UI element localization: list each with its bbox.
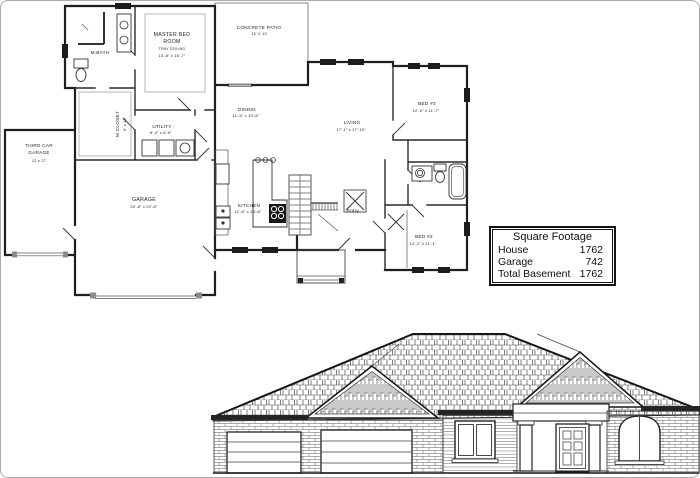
double-vanity (117, 14, 131, 52)
porch-outline (297, 250, 345, 283)
bed2-label: BED #2 (415, 234, 433, 239)
elevation-drawing (211, 334, 700, 473)
arched-window-sill (615, 461, 664, 465)
double-window-sill (452, 459, 498, 463)
refrigerator (216, 164, 229, 184)
master-bath-label: M.BATH (91, 50, 110, 55)
floor-plan: MASTER BED ROOM TRAY CEILING 13'-8" x 16… (5, 3, 470, 299)
column-cap-left (518, 421, 534, 425)
washer (142, 140, 157, 156)
master-closet-dims: 6' x 13' (122, 117, 127, 131)
shower-head-mark (82, 24, 88, 30)
dryer (159, 140, 174, 156)
table-row: Garage 742 (493, 256, 612, 268)
row-value-basement: 1762 (580, 268, 603, 280)
oven-knob-1 (221, 209, 224, 212)
bath-toilet-tank (434, 164, 446, 171)
porch-post-right (339, 278, 344, 283)
stairs (289, 175, 338, 235)
master-bed-ceiling-label: TRAY CEILING (159, 47, 185, 51)
porch-post-left (298, 278, 303, 283)
utility-dims: 8'-4" x 6'-8" (150, 130, 173, 135)
oven-knob-2 (221, 221, 224, 224)
toilet-bowl (76, 69, 86, 82)
utility-label: UTILITY (152, 124, 172, 129)
master-bath-fixtures (74, 12, 131, 82)
garage-dims: 22'-8" x 22'-8" (131, 204, 158, 209)
garage-door-piers (12, 252, 202, 299)
front-door (556, 424, 589, 472)
third-garage-dims: 12 x 27 (32, 158, 46, 163)
row-label-basement: Total Basement (498, 268, 570, 280)
dining-dims: 11'-6" x 10'-8" (233, 113, 260, 118)
master-bed-dims: 13'-8" x 16'-7" (159, 53, 186, 58)
front-porch (297, 250, 345, 283)
patio-label: CONCRETE PATIO (237, 25, 282, 30)
square-footage-table-inner: Square Footage House 1762 Garage 742 Tot… (492, 229, 613, 283)
bed3-label: BED #3 (418, 101, 436, 106)
third-garage-label-1: THIRD CAR (25, 143, 53, 148)
entry-porch (513, 404, 609, 473)
cooktop (269, 204, 286, 223)
bed2-dims: 12'-2" x 11'-1" (410, 241, 437, 246)
utility-sink-cabinet (176, 140, 194, 156)
main-roof (213, 334, 700, 421)
stair-balusters (311, 203, 338, 231)
row-label-garage: Garage (498, 256, 533, 268)
living-dims: 17'-1" x 17'-10" (336, 127, 366, 132)
patio-outline (215, 3, 308, 85)
third-garage-label-2: GARAGE (28, 150, 50, 155)
porch-entablature (513, 404, 609, 421)
entry-label: Entry (347, 208, 360, 213)
porch-column-right (588, 425, 600, 471)
shower-walls (78, 12, 104, 44)
row-label-house: House (498, 244, 528, 256)
porch-column-left (520, 425, 532, 471)
garage-door-right (321, 430, 412, 473)
toilet-tank (74, 59, 88, 68)
garage-door-sills (15, 253, 196, 299)
row-value-house: 1762 (580, 244, 603, 256)
garage-door-left (227, 432, 301, 473)
row-value-garage: 742 (585, 256, 603, 268)
dining-label: DINING (238, 107, 256, 112)
bed3-dims: 12'-0" x 11'-7" (413, 108, 440, 113)
kitchen-dims: 11'-8" x 13'-8" (235, 209, 262, 214)
double-window-sash-left (459, 425, 474, 456)
porch-steps (297, 276, 345, 280)
master-bed-label-1: MASTER BED (154, 32, 191, 38)
garage-label: GARAGE (132, 197, 156, 203)
floor-plan-labels: MASTER BED ROOM TRAY CEILING 13'-8" x 16… (25, 25, 440, 246)
table-row: Total Basement 1762 (493, 268, 612, 280)
double-window-sash-right (477, 425, 492, 456)
bath-vanity (412, 166, 432, 181)
door-swing-lines (63, 43, 424, 258)
kitchen-fixtures (215, 150, 287, 235)
square-footage-table: Square Footage House 1762 Garage 742 Tot… (489, 226, 616, 286)
bath-toilet-bowl (436, 172, 445, 183)
table-row: House 1762 (493, 244, 612, 256)
square-footage-title: Square Footage (493, 231, 612, 244)
patio-dims: 15' X 13 (251, 31, 267, 36)
interior-walls (75, 6, 467, 270)
living-label: LIVING (344, 120, 361, 125)
master-closet-label: M.CLOSET (115, 111, 120, 137)
kitchen-label: KITCHEN (238, 203, 260, 208)
utility-fixtures (142, 140, 194, 156)
master-bed-label-2: ROOM (163, 39, 180, 45)
